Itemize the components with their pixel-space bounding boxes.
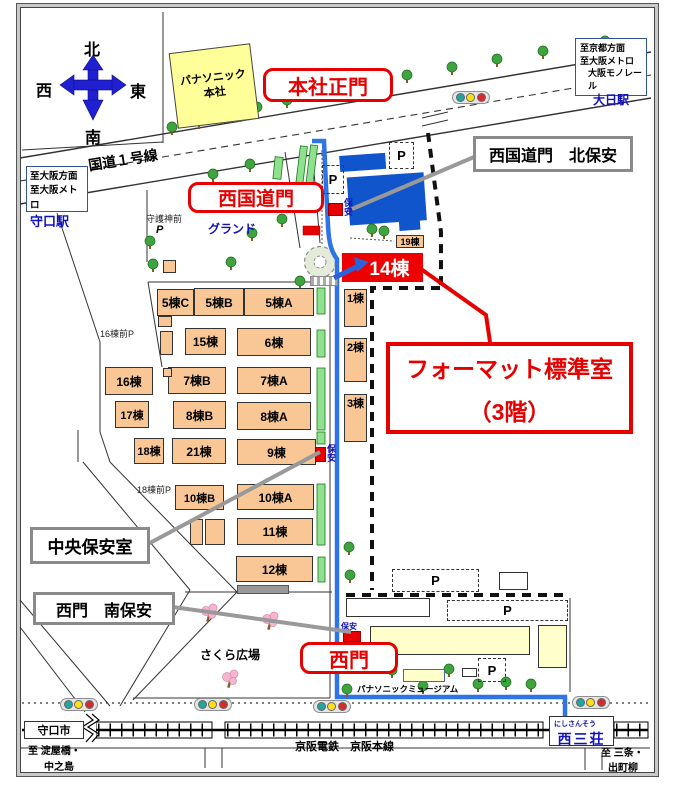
- facility-map: 北 南 西 東 パナソニック 本社 本社正門 西国道門 西門 西国道門 北保安 …: [0, 0, 691, 788]
- building-14-arrowhead: [354, 257, 369, 272]
- building-14-arrow: [334, 267, 356, 278]
- route-arrow-layer: [0, 0, 691, 788]
